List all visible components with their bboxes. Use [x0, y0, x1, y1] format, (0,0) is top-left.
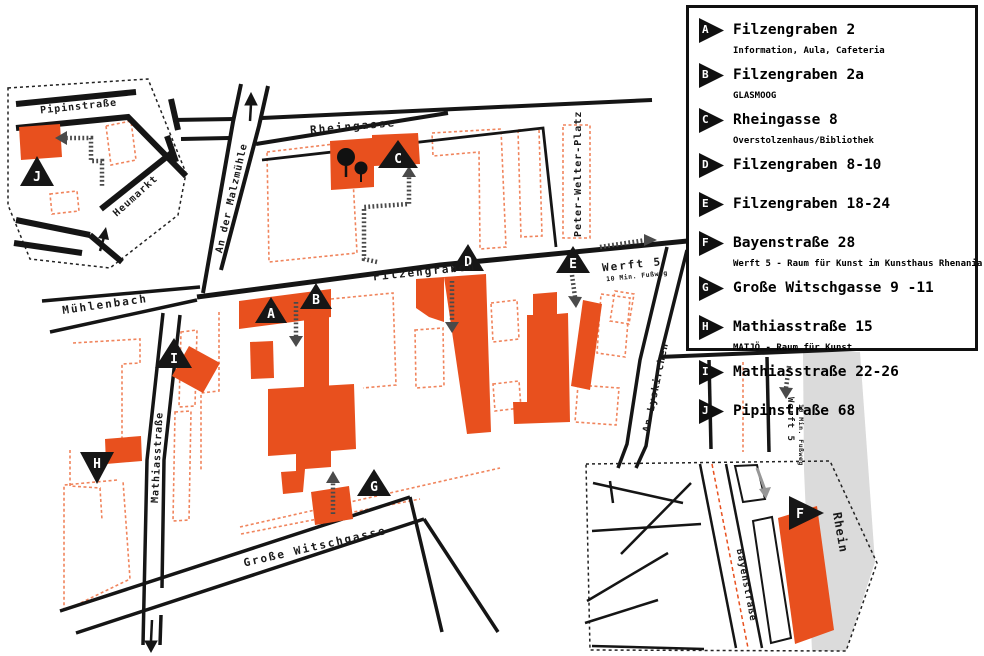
legend-subtitle: Werft 5 - Raum für Kunst im Kunsthaus Rh…: [733, 259, 982, 269]
street-rheingasse-upper: [262, 100, 652, 118]
building-e-main: [513, 292, 570, 424]
svg-text:H: H: [93, 457, 101, 472]
legend-marker-g: G: [699, 276, 724, 301]
legend-item-f: F Bayenstraße 28 Werft 5 - Raum für Kuns…: [699, 231, 967, 270]
building-j: [19, 124, 62, 160]
street-malzmuehle-east: [221, 86, 268, 270]
building-h: [105, 436, 142, 464]
legend-title: Filzengraben 8-10: [733, 157, 881, 173]
legend-subtitle: Information, Aula, Cafeteria: [733, 46, 885, 56]
legend-item-h: H Mathiasstraße 15 MATJÖ - Raum für Kuns…: [699, 315, 967, 354]
svg-text:I: I: [170, 352, 178, 367]
building-courtyard: [250, 341, 274, 379]
legend-item-d: D Filzengraben 8-10: [699, 153, 967, 178]
svg-text:A: A: [267, 307, 275, 322]
building-e-wing: [571, 300, 602, 390]
legend-title: Bayenstraße 28: [733, 235, 855, 251]
building-d-head: [416, 277, 444, 322]
label-rheingasse: Rheingasse: [310, 116, 397, 136]
legend-subtitle: MATJÖ - Raum für Kunst: [733, 343, 852, 353]
legend-marker-e: E: [699, 192, 724, 217]
legend-marker-i: I: [699, 360, 724, 385]
marker-g: G: [357, 469, 391, 496]
legend-marker-h: H: [699, 315, 724, 340]
legend-item-a: A Filzengraben 2 Information, Aula, Cafe…: [699, 18, 967, 57]
legend-box: A Filzengraben 2 Information, Aula, Cafe…: [686, 5, 978, 351]
building-center-block: [268, 384, 356, 494]
legend-subtitle: GLASMOOG: [733, 91, 776, 101]
legend-title: Mathiasstraße 22-26: [733, 364, 899, 380]
legend-item-e: E Filzengraben 18-24: [699, 192, 967, 217]
legend-marker-f: F: [699, 231, 724, 256]
legend-title: Filzengraben 2a: [733, 67, 864, 83]
legend-marker-b: B: [699, 63, 724, 88]
legend-title: Rheingasse 8: [733, 112, 838, 128]
label-peter-welter-platz: Peter-Welter-Platz: [573, 111, 584, 237]
legend-title: Große Witschgasse 9 -11: [733, 280, 934, 296]
marker-j: J: [20, 156, 54, 186]
legend-title: Filzengraben 18-24: [733, 196, 890, 212]
legend-title: Mathiasstraße 15: [733, 319, 873, 335]
legend-title: Pipinstraße 68: [733, 403, 855, 419]
svg-text:G: G: [370, 480, 378, 495]
street-witschgasse-upper: [60, 497, 410, 611]
legend-item-b: B Filzengraben 2a GLASMOOG: [699, 63, 967, 102]
legend-title: Filzengraben 2: [733, 22, 855, 38]
legend-marker-d: D: [699, 153, 724, 178]
legend-subtitle: Overstolzenhaus/Bibliothek: [733, 136, 874, 146]
svg-text:J: J: [33, 170, 41, 185]
legend-marker-a: A: [699, 18, 724, 43]
legend-item-j: J Pipinstraße 68: [699, 399, 967, 424]
marker-h: H: [80, 452, 114, 484]
label-witschgasse: Große Witschgasse: [242, 524, 388, 570]
campus-map-page: { "legend": { "items": [ {"letter":"A","…: [0, 0, 984, 656]
svg-text:B: B: [312, 293, 320, 308]
label-an-lyskirchen: An Lyskirchen: [640, 342, 671, 434]
legend-item-c: C Rheingasse 8 Overstolzenhaus/Bibliothe…: [699, 108, 967, 147]
label-bayenstrasse: Bayenstraße: [734, 548, 759, 623]
svg-text:F: F: [796, 507, 804, 522]
legend-item-i: I Mathiasstraße 22-26: [699, 360, 967, 385]
legend-marker-c: C: [699, 108, 724, 133]
legend-item-g: G Große Witschgasse 9 -11: [699, 276, 967, 301]
svg-text:E: E: [569, 257, 577, 272]
svg-text:C: C: [394, 152, 402, 167]
legend-marker-j: J: [699, 399, 724, 424]
